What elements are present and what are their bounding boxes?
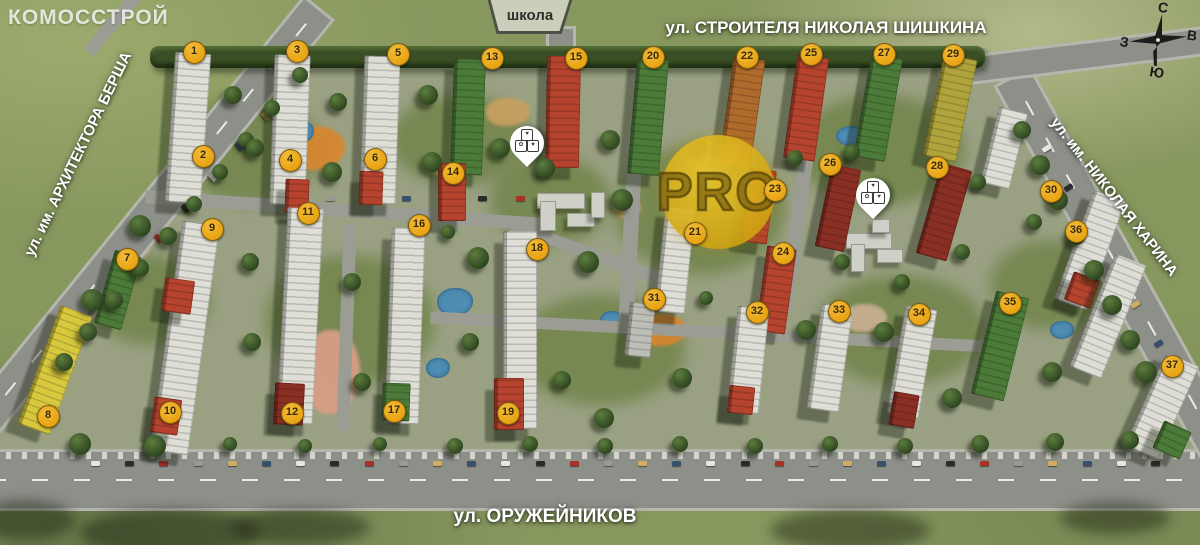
parked-car	[809, 461, 818, 466]
building-marker-27[interactable]: 27	[873, 43, 896, 66]
parked-car	[330, 461, 339, 466]
tree	[822, 436, 838, 452]
building	[161, 277, 195, 315]
tree	[796, 320, 816, 340]
low-rise-block	[872, 219, 890, 233]
parked-car	[946, 461, 955, 466]
building-marker-6[interactable]: 6	[364, 148, 387, 171]
tree	[212, 164, 228, 180]
tree-shadow	[770, 510, 930, 545]
tree	[329, 93, 347, 111]
building-marker-32[interactable]: 32	[746, 301, 769, 324]
tree	[373, 437, 387, 451]
parked-car	[501, 461, 510, 466]
tree	[600, 130, 620, 150]
tree	[672, 368, 692, 388]
building-marker-8[interactable]: 8	[37, 405, 60, 428]
parked-car	[91, 461, 100, 466]
tree	[672, 436, 688, 452]
tree	[834, 254, 850, 270]
parked-car	[843, 461, 852, 466]
building-marker-12[interactable]: 12	[281, 402, 304, 425]
building-marker-7[interactable]: 7	[116, 248, 139, 271]
tree	[81, 289, 103, 311]
tree	[224, 86, 242, 104]
street-label-left: ул. им. АРХИТЕКТОРА БЕРША	[21, 54, 133, 259]
tree	[1121, 431, 1139, 449]
parked-car	[1048, 461, 1057, 466]
building-marker-1[interactable]: 1	[183, 41, 206, 64]
building-marker-9[interactable]: 9	[201, 218, 224, 241]
school-sign: школа	[486, 0, 574, 34]
cube-glyph: ♥	[527, 140, 539, 152]
tree	[298, 439, 312, 453]
parked-car	[296, 461, 305, 466]
tree	[971, 435, 989, 453]
tree	[597, 438, 613, 454]
kindergarten-pin-1[interactable]: ♥✿♥	[503, 119, 551, 167]
parked-car	[706, 461, 715, 466]
building-marker-20[interactable]: 20	[642, 46, 665, 69]
tree	[1135, 361, 1157, 383]
building-marker-33[interactable]: 33	[828, 300, 851, 323]
tree	[1042, 362, 1062, 382]
tree	[897, 438, 913, 454]
tree	[144, 435, 166, 457]
tree	[954, 244, 970, 260]
parked-car	[1151, 461, 1160, 466]
tree	[441, 225, 455, 239]
tree	[611, 189, 633, 211]
tree	[1046, 433, 1064, 451]
building-marker-13[interactable]: 13	[481, 47, 504, 70]
tree	[1013, 121, 1031, 139]
parked-car	[1083, 461, 1092, 466]
kindergarten-pin-2[interactable]: ♥✿♥	[849, 171, 897, 219]
building-marker-5[interactable]: 5	[387, 43, 410, 66]
tree	[186, 196, 202, 212]
building	[545, 56, 581, 169]
tree	[55, 353, 73, 371]
parked-car	[877, 461, 886, 466]
tree	[699, 291, 713, 305]
building-marker-29[interactable]: 29	[942, 44, 965, 67]
building-marker-10[interactable]: 10	[159, 401, 182, 424]
tree	[1120, 330, 1140, 350]
low-rise-block	[851, 244, 865, 272]
toy-cubes-icon: ♥✿♥	[856, 178, 890, 212]
low-rise-block	[877, 249, 903, 263]
tree	[1102, 295, 1122, 315]
tree	[1026, 214, 1042, 230]
tree	[942, 388, 962, 408]
parked-car	[399, 461, 408, 466]
building-marker-23[interactable]: 23	[764, 179, 787, 202]
building	[450, 58, 486, 175]
toy-cubes-icon: ♥✿♥	[510, 126, 544, 160]
building-marker-31[interactable]: 31	[643, 288, 666, 311]
tree-shadow	[230, 509, 370, 545]
parked-car	[912, 461, 921, 466]
svg-text:В: В	[1186, 27, 1196, 44]
parked-car	[672, 461, 681, 466]
parked-car	[433, 461, 442, 466]
compass-rose-icon: С Ю З В	[1120, 2, 1196, 78]
building-marker-4[interactable]: 4	[279, 149, 302, 172]
cube-glyph: ♥	[873, 192, 885, 204]
parked-car	[604, 461, 613, 466]
tree	[535, 158, 555, 178]
building-marker-28[interactable]: 28	[926, 156, 949, 179]
building-marker-34[interactable]: 34	[908, 303, 931, 326]
tree	[343, 273, 361, 291]
parked-car	[516, 196, 525, 201]
building-marker-14[interactable]: 14	[442, 162, 465, 185]
building-marker-21[interactable]: 21	[684, 222, 707, 245]
parked-car	[326, 196, 335, 201]
tree	[129, 215, 151, 237]
building-marker-11[interactable]: 11	[297, 202, 320, 225]
tree	[577, 251, 599, 273]
tree	[461, 333, 479, 351]
parked-car	[980, 461, 989, 466]
building-marker-15[interactable]: 15	[565, 47, 588, 70]
tree	[522, 436, 538, 452]
building-marker-37[interactable]: 37	[1161, 355, 1184, 378]
tree	[787, 150, 803, 166]
parked-car	[402, 196, 411, 201]
building-marker-3[interactable]: 3	[286, 40, 309, 63]
cube-glyph: ✿	[515, 140, 527, 152]
tree	[223, 437, 237, 451]
tree	[1030, 155, 1050, 175]
building-marker-35[interactable]: 35	[999, 292, 1022, 315]
parked-car	[638, 461, 647, 466]
parked-car	[467, 461, 476, 466]
building-marker-24[interactable]: 24	[772, 242, 795, 265]
parked-car	[1117, 461, 1126, 466]
svg-text:С: С	[1157, 2, 1170, 16]
parked-car	[478, 196, 487, 201]
parked-car	[159, 461, 168, 466]
building-marker-26[interactable]: 26	[819, 153, 842, 176]
parked-car	[365, 461, 374, 466]
building-marker-2[interactable]: 2	[192, 145, 215, 168]
parked-car	[1014, 461, 1023, 466]
tree	[874, 322, 894, 342]
tree	[353, 373, 371, 391]
tree	[292, 67, 308, 83]
tree	[69, 433, 91, 455]
tree	[594, 408, 614, 428]
masterplan-map: КОМОССТРОЙ школа С Ю З В ул. СТРОИТЕЛЯ Н…	[0, 0, 1200, 545]
tree	[243, 333, 261, 351]
tree	[422, 152, 442, 172]
tree	[105, 291, 123, 309]
tree	[246, 139, 264, 157]
building-marker-16[interactable]: 16	[408, 214, 431, 237]
tree	[322, 162, 342, 182]
tree	[1084, 260, 1104, 280]
tree	[970, 174, 986, 190]
tree	[844, 144, 860, 160]
tree	[894, 274, 910, 290]
building-marker-17[interactable]: 17	[383, 400, 406, 423]
parked-car	[262, 461, 271, 466]
street-label-top: ул. СТРОИТЕЛЯ НИКОЛАЯ ШИШКИНА	[656, 18, 996, 38]
building	[358, 171, 383, 206]
street-label-bottom: ул. ОРУЖЕЙНИКОВ	[415, 506, 675, 528]
parked-car	[228, 461, 237, 466]
building-marker-19[interactable]: 19	[497, 402, 520, 425]
tree	[418, 85, 438, 105]
parked-car	[741, 461, 750, 466]
building-marker-36[interactable]: 36	[1065, 220, 1088, 243]
tree	[553, 371, 571, 389]
tree	[447, 438, 463, 454]
developer-logo: КОМОССТРОЙ	[8, 6, 169, 30]
svg-text:Ю: Ю	[1149, 63, 1166, 78]
pro-watermark: PRO	[661, 135, 775, 249]
tree-shadow	[1060, 502, 1170, 534]
tree	[79, 323, 97, 341]
building-marker-25[interactable]: 25	[800, 43, 823, 66]
school-sign-label: школа	[489, 0, 571, 31]
parked-car	[194, 461, 203, 466]
tree	[467, 247, 489, 269]
parked-car	[536, 461, 545, 466]
parked-car	[570, 461, 579, 466]
tree	[241, 253, 259, 271]
low-rise-block	[591, 192, 605, 218]
cube-glyph: ✿	[861, 192, 873, 204]
low-rise-block	[540, 201, 556, 231]
building-marker-22[interactable]: 22	[736, 46, 759, 69]
tree	[159, 227, 177, 245]
tree	[490, 138, 510, 158]
building-marker-18[interactable]: 18	[526, 238, 549, 261]
building-marker-30[interactable]: 30	[1040, 180, 1063, 203]
tree	[747, 438, 763, 454]
tree	[264, 100, 280, 116]
svg-text:З: З	[1120, 33, 1130, 50]
building	[727, 385, 756, 416]
parked-car	[775, 461, 784, 466]
parked-car	[125, 461, 134, 466]
